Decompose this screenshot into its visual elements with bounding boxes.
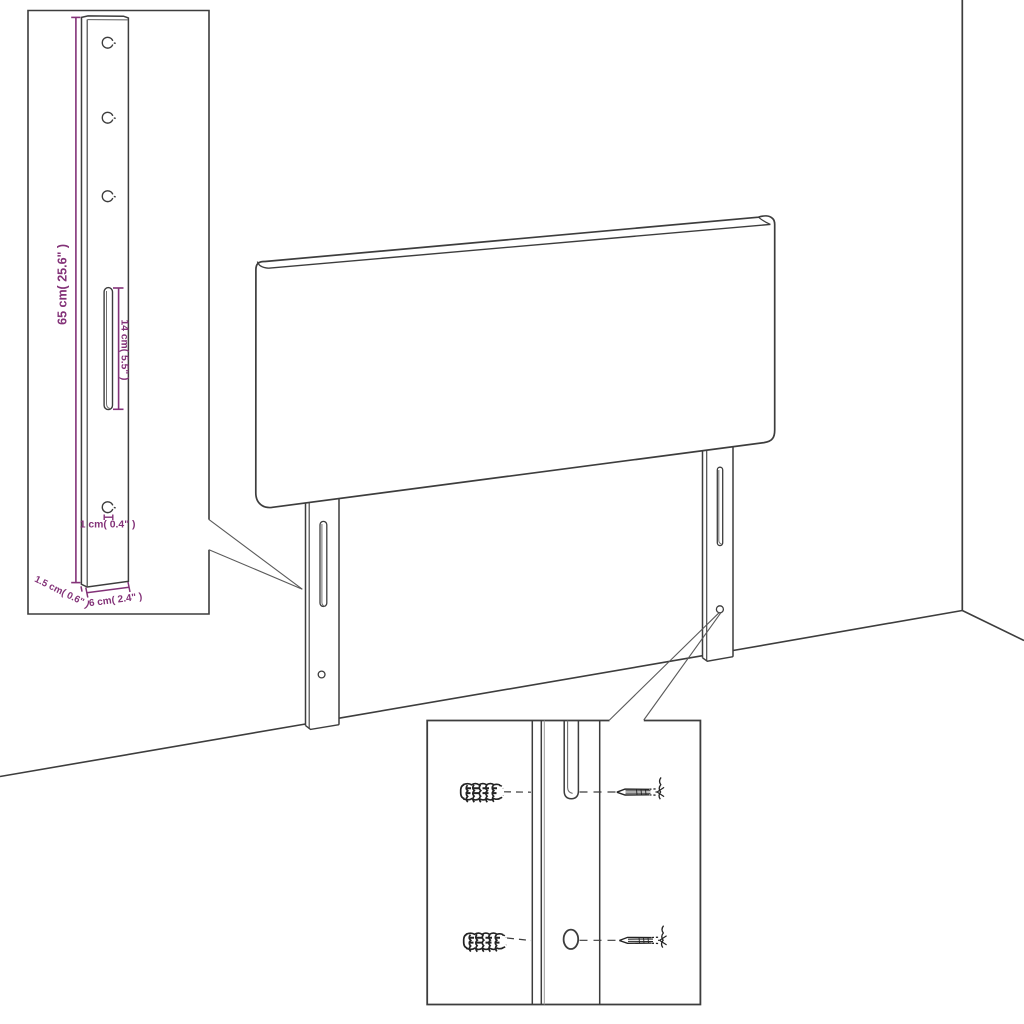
- svg-text:1 cm( 0.4" ): 1 cm( 0.4" ): [80, 520, 136, 531]
- svg-text:14 cm( 5.5" ): 14 cm( 5.5" ): [118, 320, 129, 381]
- svg-text:65 cm( 25.6" ): 65 cm( 25.6" ): [56, 244, 70, 325]
